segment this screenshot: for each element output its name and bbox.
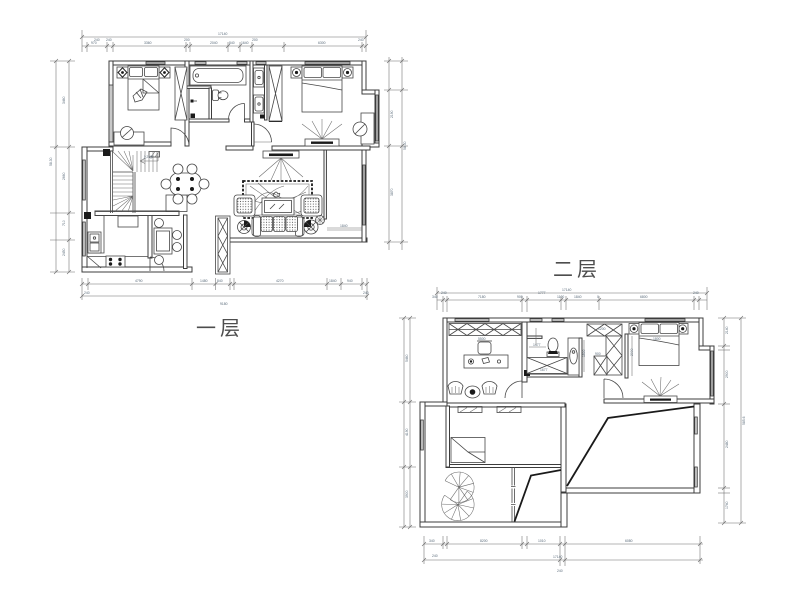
svg-text:240: 240 [94, 38, 100, 42]
svg-text:1200: 1200 [598, 327, 606, 331]
svg-text:240: 240 [441, 291, 447, 295]
svg-text:2660: 2660 [62, 172, 66, 180]
svg-text:2140: 2140 [725, 326, 729, 334]
svg-text:4270: 4270 [276, 279, 284, 283]
svg-text:1500: 1500 [582, 349, 586, 357]
svg-text:1010: 1010 [538, 539, 546, 543]
svg-text:17140: 17140 [553, 555, 563, 559]
svg-text:3460: 3460 [62, 96, 66, 104]
svg-text:一层: 一层 [196, 318, 244, 340]
svg-text:二层: 二层 [553, 259, 601, 281]
svg-text:240: 240 [432, 554, 438, 558]
svg-text:585.6: 585.6 [742, 416, 746, 425]
svg-text:4190: 4190 [405, 428, 409, 436]
svg-text:1840: 1840 [340, 224, 348, 228]
svg-text:200: 200 [252, 38, 258, 42]
svg-text:5500: 5500 [478, 337, 486, 341]
svg-text:1800: 1800 [653, 337, 661, 341]
svg-text:240: 240 [693, 291, 699, 295]
svg-text:840: 840 [217, 279, 223, 283]
svg-text:5460: 5460 [405, 354, 409, 362]
svg-text:2190: 2190 [390, 110, 394, 118]
svg-text:1777: 1777 [538, 291, 546, 295]
svg-text:8200: 8200 [480, 539, 488, 543]
svg-text:17140: 17140 [218, 32, 228, 36]
svg-text:6300: 6300 [318, 41, 326, 45]
svg-text:2000: 2000 [630, 348, 634, 356]
svg-text:900: 900 [517, 295, 523, 299]
svg-text:240: 240 [358, 38, 364, 42]
svg-text:1477: 1477 [533, 343, 541, 347]
svg-text:58.30: 58.30 [49, 157, 53, 166]
svg-text:240: 240 [557, 569, 563, 573]
svg-text:4790: 4790 [135, 279, 143, 283]
svg-text:0: 0 [597, 295, 599, 299]
svg-text:340: 340 [432, 295, 438, 299]
svg-text:1480: 1480 [200, 279, 208, 283]
svg-text:2900: 2900 [725, 370, 729, 378]
svg-text:58.30: 58.30 [403, 141, 407, 150]
svg-text:1677: 1677 [540, 368, 548, 372]
svg-text:240: 240 [84, 291, 90, 295]
svg-text:340: 340 [429, 539, 435, 543]
svg-text:1840: 1840 [574, 295, 582, 299]
svg-text:1840: 1840 [329, 279, 337, 283]
svg-text:200: 200 [184, 38, 190, 42]
svg-text:3870: 3870 [390, 188, 394, 196]
svg-text:840: 840 [229, 41, 235, 45]
svg-text:6800: 6800 [640, 295, 648, 299]
svg-text:1740: 1740 [725, 501, 729, 509]
svg-text:3900: 3900 [405, 490, 409, 498]
svg-text:1100: 1100 [557, 295, 564, 299]
svg-text:2480: 2480 [725, 440, 729, 448]
svg-text:2450: 2450 [62, 248, 66, 256]
svg-text:6080: 6080 [625, 539, 633, 543]
svg-text:1640: 1640 [241, 41, 249, 45]
svg-text:710: 710 [62, 220, 66, 226]
svg-text:3360: 3360 [144, 41, 152, 45]
svg-text:2040: 2040 [210, 41, 218, 45]
svg-text:240: 240 [363, 291, 369, 295]
svg-text:900: 900 [595, 352, 601, 356]
svg-text:7180: 7180 [478, 295, 486, 299]
svg-text:240: 240 [106, 38, 112, 42]
svg-text:上21步: 上21步 [143, 154, 154, 159]
svg-text:940: 940 [347, 279, 353, 283]
svg-text:17140: 17140 [562, 288, 572, 292]
svg-text:9180: 9180 [220, 302, 228, 306]
